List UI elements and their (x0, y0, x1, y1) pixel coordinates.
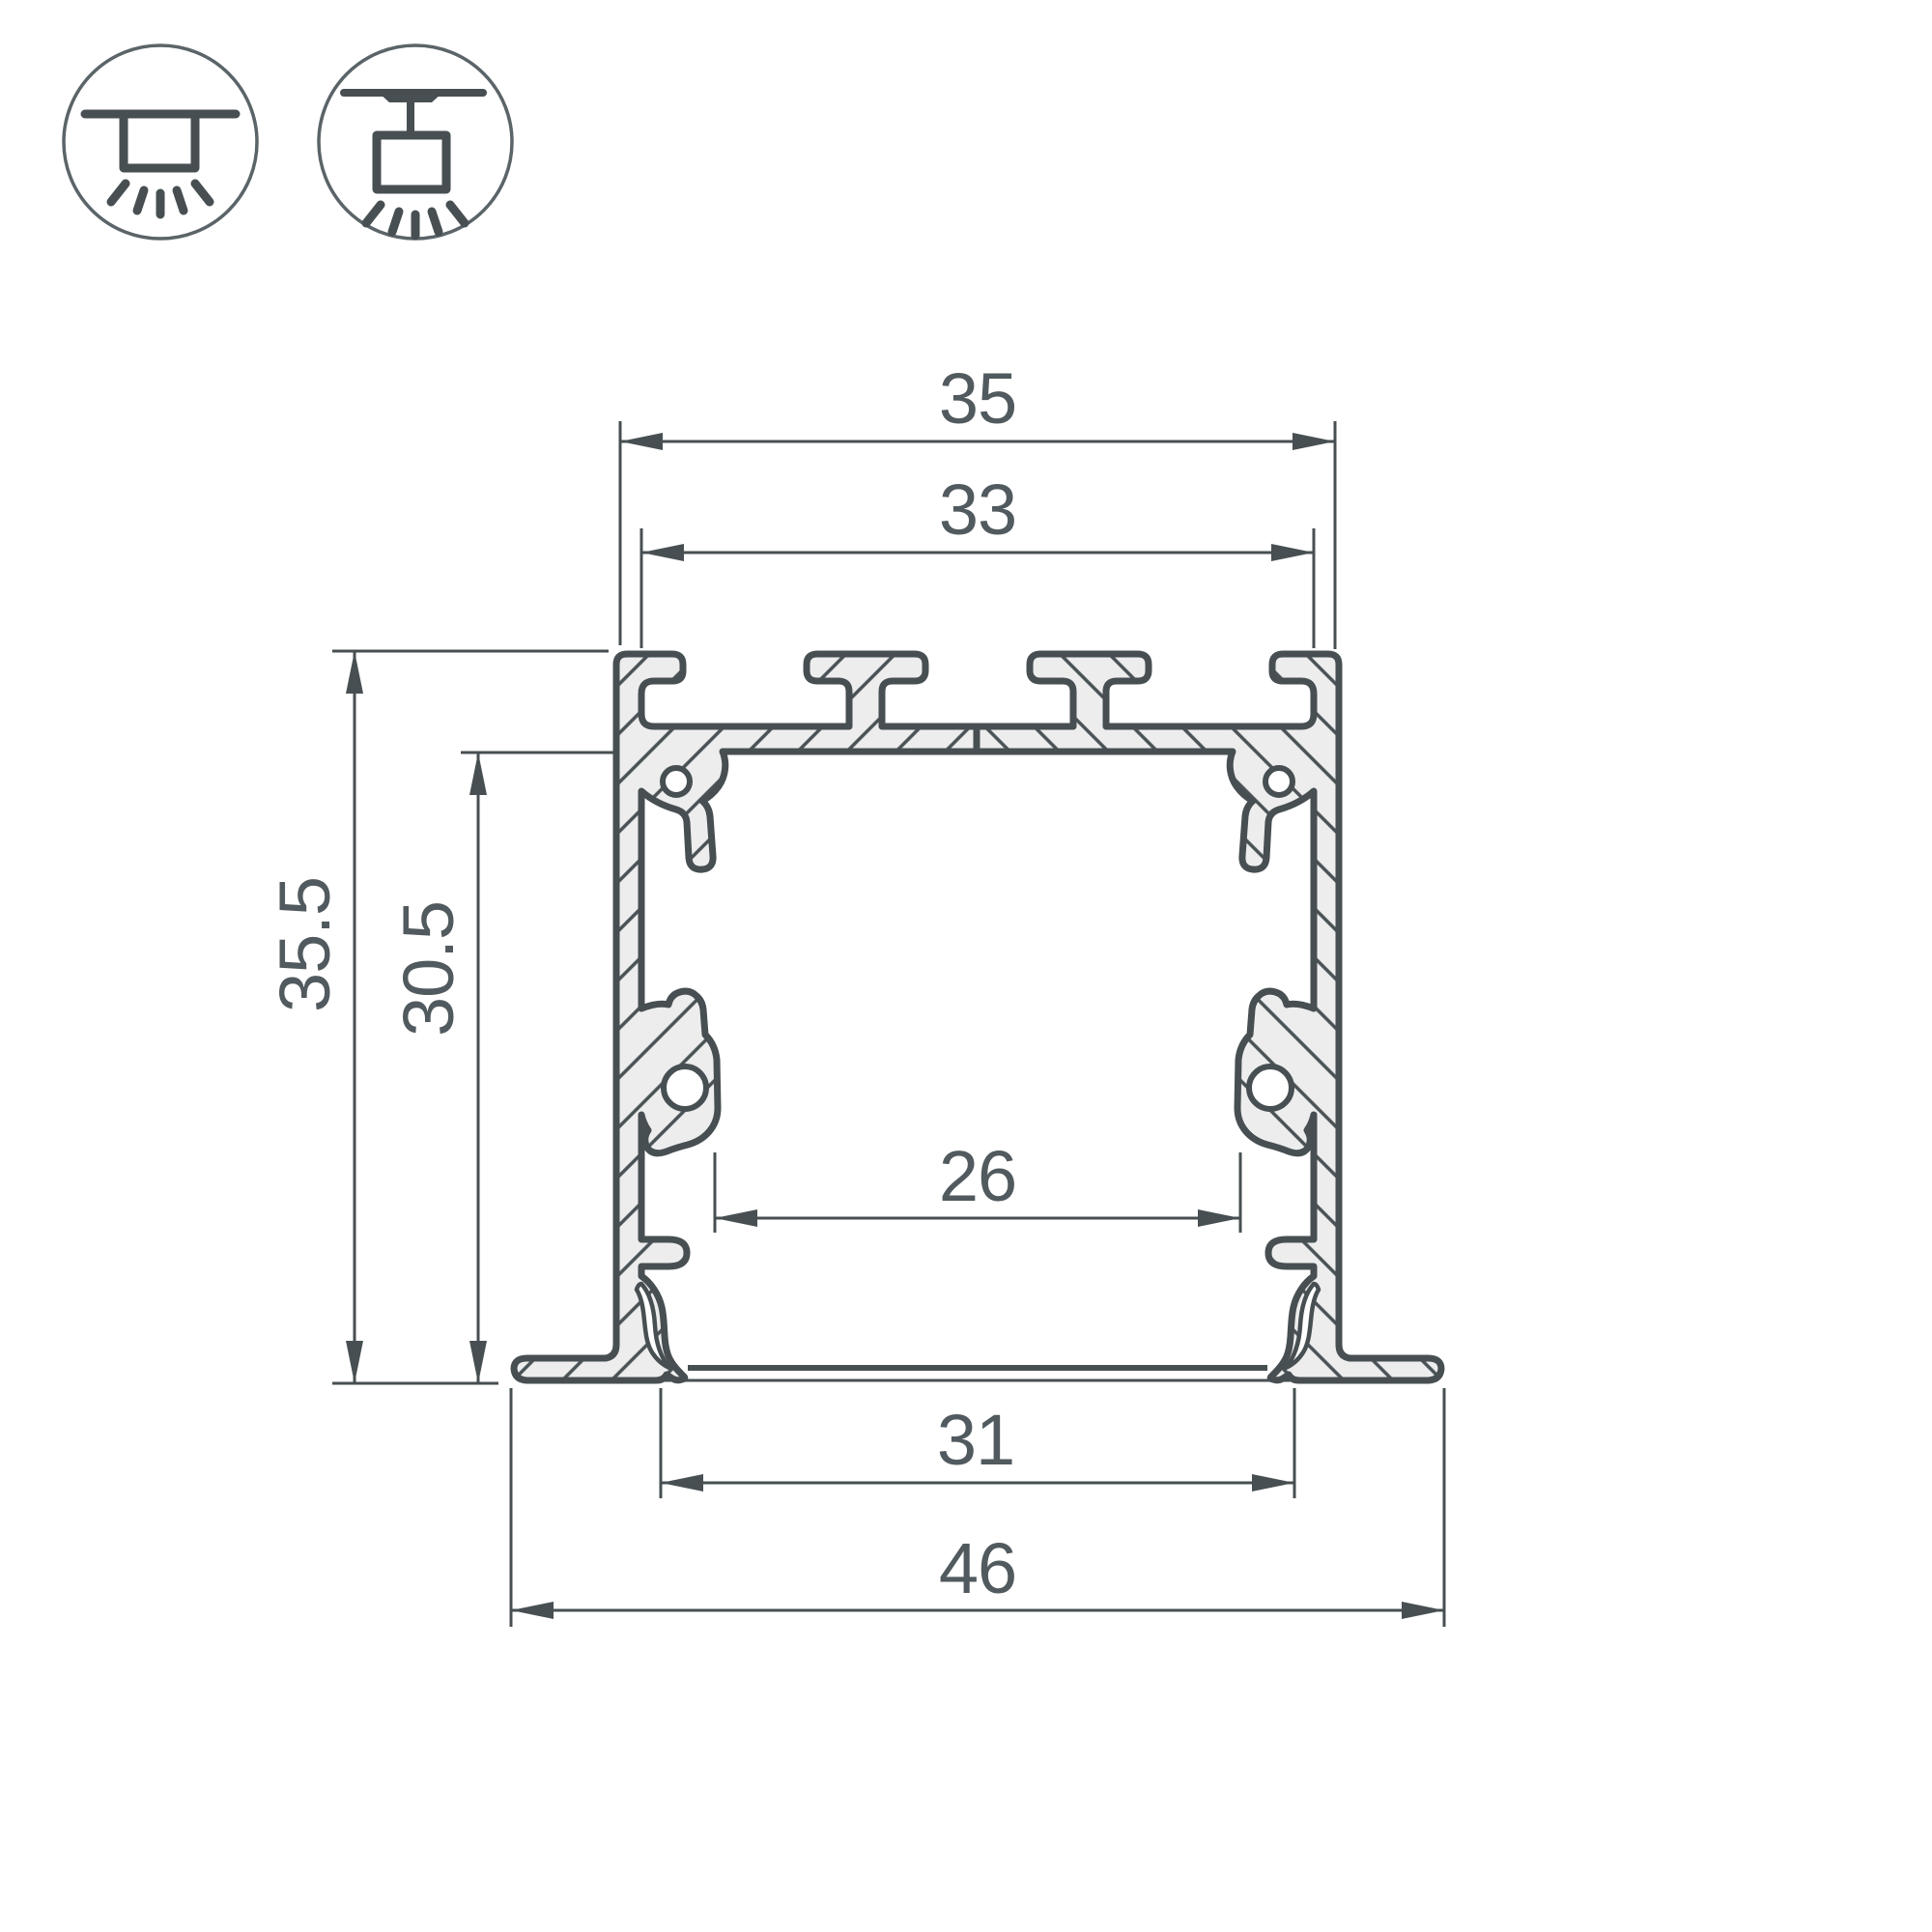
label-top-width: 35 (939, 358, 1016, 439)
label-body-width: 31 (937, 1400, 1014, 1480)
icon-circle (319, 45, 512, 239)
pendant-mount-icon (319, 45, 512, 239)
recessed-mount-icon (64, 45, 257, 239)
label-inner-bottom-width: 26 (939, 1136, 1016, 1216)
technical-drawing-page: 35 33 35.5 30.5 26 31 46 (0, 0, 1932, 1932)
label-flange-width: 46 (939, 1528, 1016, 1608)
light-rays-icon (111, 184, 210, 214)
label-total-height: 35.5 (265, 877, 345, 1012)
dimension-total-height (332, 651, 609, 1383)
dimension-inner-height (461, 753, 618, 1383)
profile-dimension-drawing: 35 33 35.5 30.5 26 31 46 (0, 0, 1932, 1932)
profile-box (377, 135, 446, 189)
profile-box (124, 114, 195, 168)
profile-section (514, 654, 1441, 1380)
label-inner-top-width: 33 (939, 469, 1016, 550)
label-inner-height: 30.5 (388, 901, 469, 1037)
